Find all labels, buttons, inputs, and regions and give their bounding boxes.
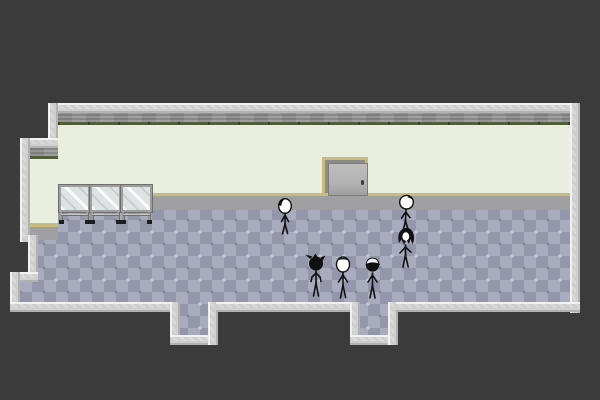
wall-border-segment <box>216 302 352 312</box>
table-foot <box>59 220 64 224</box>
wall-plaster <box>30 125 570 193</box>
glass-table-row <box>59 185 152 224</box>
wall-top-band <box>30 148 58 156</box>
wall-main <box>30 112 570 196</box>
wall-plaster <box>30 159 58 223</box>
wall-border-segment <box>396 302 580 312</box>
exit-passage-south-left[interactable] <box>180 312 208 335</box>
glass-pane <box>90 185 121 212</box>
background-mask <box>398 312 600 400</box>
wall-border-segment <box>20 138 30 242</box>
wall-top-band <box>30 112 570 122</box>
wall-border-segment <box>10 302 172 312</box>
door-knob <box>361 180 364 185</box>
wall-border-segment <box>570 103 580 313</box>
door[interactable] <box>322 157 368 196</box>
glass-pane <box>121 185 152 212</box>
table-foot <box>147 220 152 224</box>
table-foot <box>90 220 95 224</box>
wall-baseboard <box>30 223 58 227</box>
door-panel <box>328 163 368 196</box>
wall-border-segment <box>48 103 580 113</box>
table-rail <box>92 214 119 216</box>
glass-table[interactable] <box>121 185 152 224</box>
wall-left-section <box>30 148 58 227</box>
exit-passage-south-right[interactable] <box>360 312 388 335</box>
glass-table[interactable] <box>90 185 121 224</box>
glass-pane <box>59 185 90 212</box>
table-foot <box>121 220 126 224</box>
game-stage <box>0 0 600 400</box>
table-rail <box>61 214 88 216</box>
background-mask <box>0 312 170 400</box>
glass-table[interactable] <box>59 185 90 224</box>
table-rail <box>123 214 150 216</box>
background-mask <box>218 312 350 400</box>
